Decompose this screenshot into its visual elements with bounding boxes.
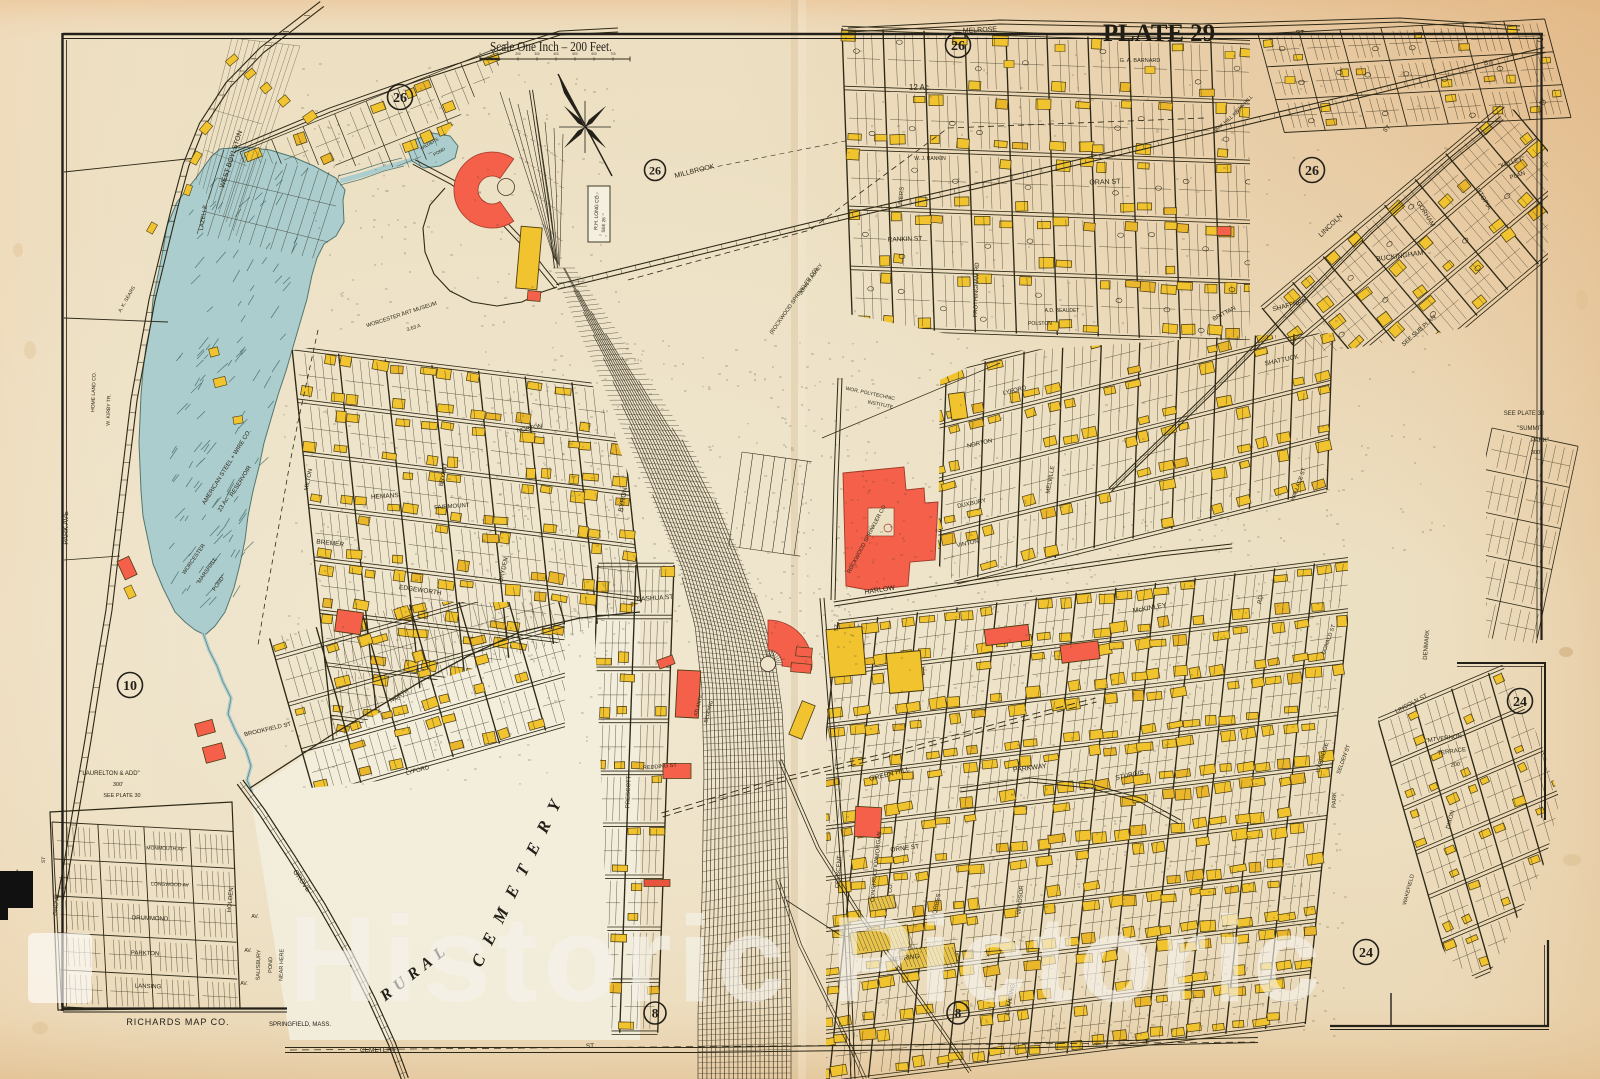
svg-text:NEAR HERE: NEAR HERE [278, 948, 285, 981]
svg-text:ORAN ST: ORAN ST [1089, 178, 1121, 186]
svg-text:100: 100 [496, 52, 502, 56]
svg-text:600: 600 [591, 52, 597, 56]
svg-text:12 Ac.: 12 Ac. [909, 83, 931, 92]
svg-text:PRESCOTT: PRESCOTT [625, 775, 632, 808]
svg-text:300': 300' [1531, 450, 1541, 456]
svg-text:W. J. RANKIN: W. J. RANKIN [914, 156, 946, 162]
svg-text:RICHARDS MAP CO.: RICHARDS MAP CO. [126, 1017, 229, 1027]
svg-text:300: 300 [534, 52, 540, 56]
svg-text:"LAURELTON & ADD": "LAURELTON & ADD" [80, 771, 139, 777]
svg-text:300': 300' [113, 782, 123, 788]
svg-text:G. A. BARNARD: G. A. BARNARD [1120, 58, 1161, 64]
svg-text:SEE PLATE 30: SEE PLATE 30 [103, 793, 140, 799]
svg-text:AV.: AV. [244, 948, 251, 954]
svg-text:500: 500 [572, 52, 578, 56]
svg-text:400: 400 [553, 52, 559, 56]
svg-text:SALISBURY: SALISBURY [255, 949, 262, 980]
svg-text:CEMETERY: CEMETERY [360, 1047, 397, 1054]
svg-text:ST: ST [41, 856, 48, 863]
svg-text:PARK: PARK [1332, 792, 1339, 808]
svg-text:R.H. LONG CO.: R.H. LONG CO. [593, 194, 600, 230]
svg-text:W. KIRBY TR.: W. KIRBY TR. [105, 394, 112, 426]
svg-text:POND: POND [268, 957, 275, 973]
svg-text:Historic Pictoric: Historic Pictoric [289, 891, 1327, 1027]
svg-text:26: 26 [393, 91, 407, 106]
svg-text:POLSTON: POLSTON [1028, 321, 1052, 327]
svg-text:PARKTON: PARKTON [131, 951, 160, 958]
svg-text:200: 200 [515, 52, 521, 56]
svg-text:10: 10 [123, 679, 137, 694]
svg-text:24: 24 [1513, 695, 1527, 710]
svg-text:26: 26 [951, 39, 965, 54]
svg-text:LANSING: LANSING [135, 984, 162, 991]
svg-text:26: 26 [1305, 164, 1319, 179]
svg-text:AV.: AV. [240, 981, 247, 987]
svg-text:700: 700 [610, 52, 616, 56]
svg-text:ST: ST [586, 1043, 594, 1050]
svg-text:24: 24 [1359, 946, 1373, 961]
svg-text:26: 26 [649, 163, 661, 177]
svg-text:SEE PLATE 30: SEE PLATE 30 [1504, 411, 1545, 417]
svg-text:AV.: AV. [251, 914, 258, 920]
svg-text:"SUMMIT: "SUMMIT [1517, 426, 1543, 432]
svg-text:RANKIN ST: RANKIN ST [888, 235, 923, 243]
svg-text:PARK": PARK" [1531, 438, 1549, 444]
svg-text:SEE 26: SEE 26 [601, 217, 607, 233]
svg-text:A.D. BEAUDET: A.D. BEAUDET [1045, 308, 1080, 314]
svg-text:0: 0 [479, 52, 481, 56]
svg-text:ST: ST [1484, 61, 1492, 67]
